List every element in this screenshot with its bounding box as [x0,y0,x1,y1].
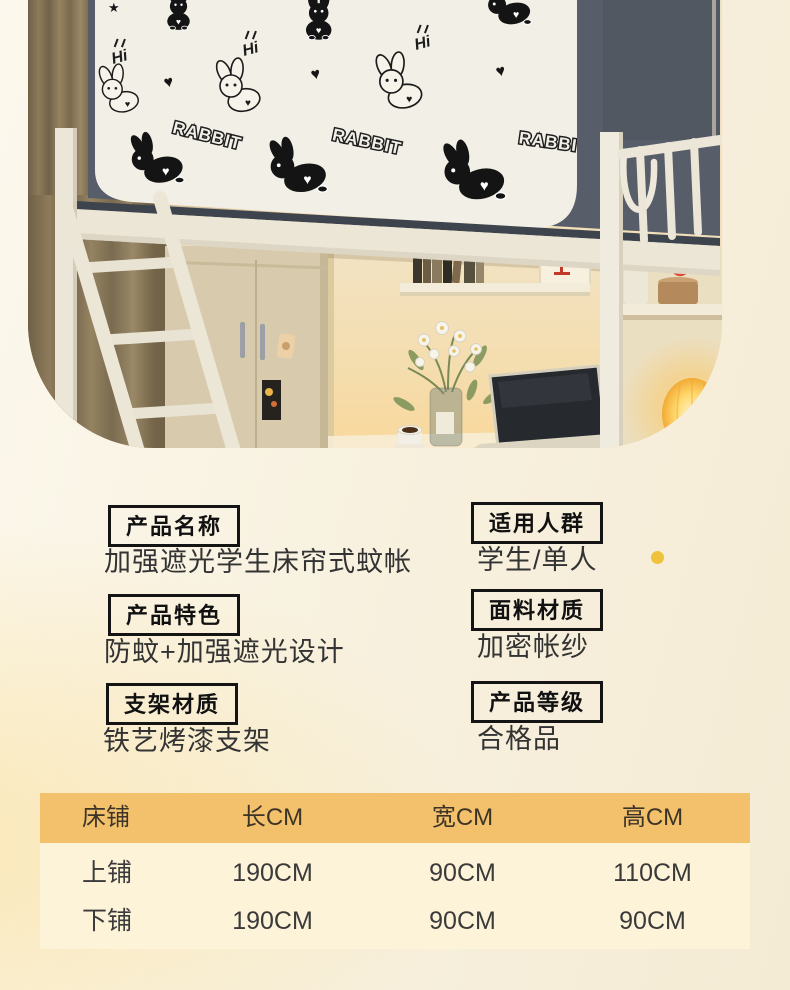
star-icon: ★ [108,0,120,15]
header-bed: 床铺 [40,793,175,843]
coffee-cup [394,426,426,449]
header-height: 高CM [555,793,750,843]
wood-box [658,277,698,304]
size-table: 床铺 长CM 宽CM 高CM 上铺 190CM 90CM 110CM 下铺 19… [40,793,750,949]
spec-product-grade-value: 合格品 [477,717,561,756]
tag-sticker [276,333,295,359]
wardrobe-handle [260,324,265,360]
cell-width: 90CM [370,849,555,897]
spec-target-users-value: 学生/单人 [477,538,598,577]
cell-length: 190CM [175,897,370,945]
wardrobe-handle [240,322,245,358]
product-detail-page: ♥ ♥ [0,0,790,990]
size-table-body: 上铺 190CM 90CM 110CM 下铺 190CM 90CM 90CM [40,843,750,949]
canopy-panel: ★ Hi Hi Hi ♥ [95,0,590,230]
spec-product-name-value: 加强遮光学生床帘式蚊帐 [104,540,412,579]
size-table-header: 床铺 长CM 宽CM 高CM [40,793,750,843]
product-photo: ♥ ♥ [28,0,722,448]
spec-bracket-material-value: 铁艺烤漆支架 [103,719,271,758]
header-length: 长CM [175,793,370,843]
cell-length: 190CM [175,849,370,897]
cell-bed: 下铺 [40,897,175,945]
spec-features-value: 防蚊+加强遮光设计 [104,630,345,669]
accent-dot [651,551,664,564]
header-width: 宽CM [370,793,555,843]
right-shelf-unit [613,246,722,448]
cell-height: 110CM [555,849,750,897]
product-photo-illustration: ♥ ♥ [28,0,722,448]
cell-width: 90CM [370,897,555,945]
spec-fabric-material-value: 加密帐纱 [477,625,589,664]
laptop [474,366,616,448]
poster-sticker [262,380,281,420]
cell-height: 90CM [555,897,750,945]
cell-bed: 上铺 [40,849,175,897]
table-row: 上铺 190CM 90CM 110CM [40,849,750,897]
table-lamp [662,378,722,448]
shelf-board [619,304,722,315]
desk-alcove [328,246,616,448]
table-row: 下铺 190CM 90CM 90CM [40,897,750,945]
